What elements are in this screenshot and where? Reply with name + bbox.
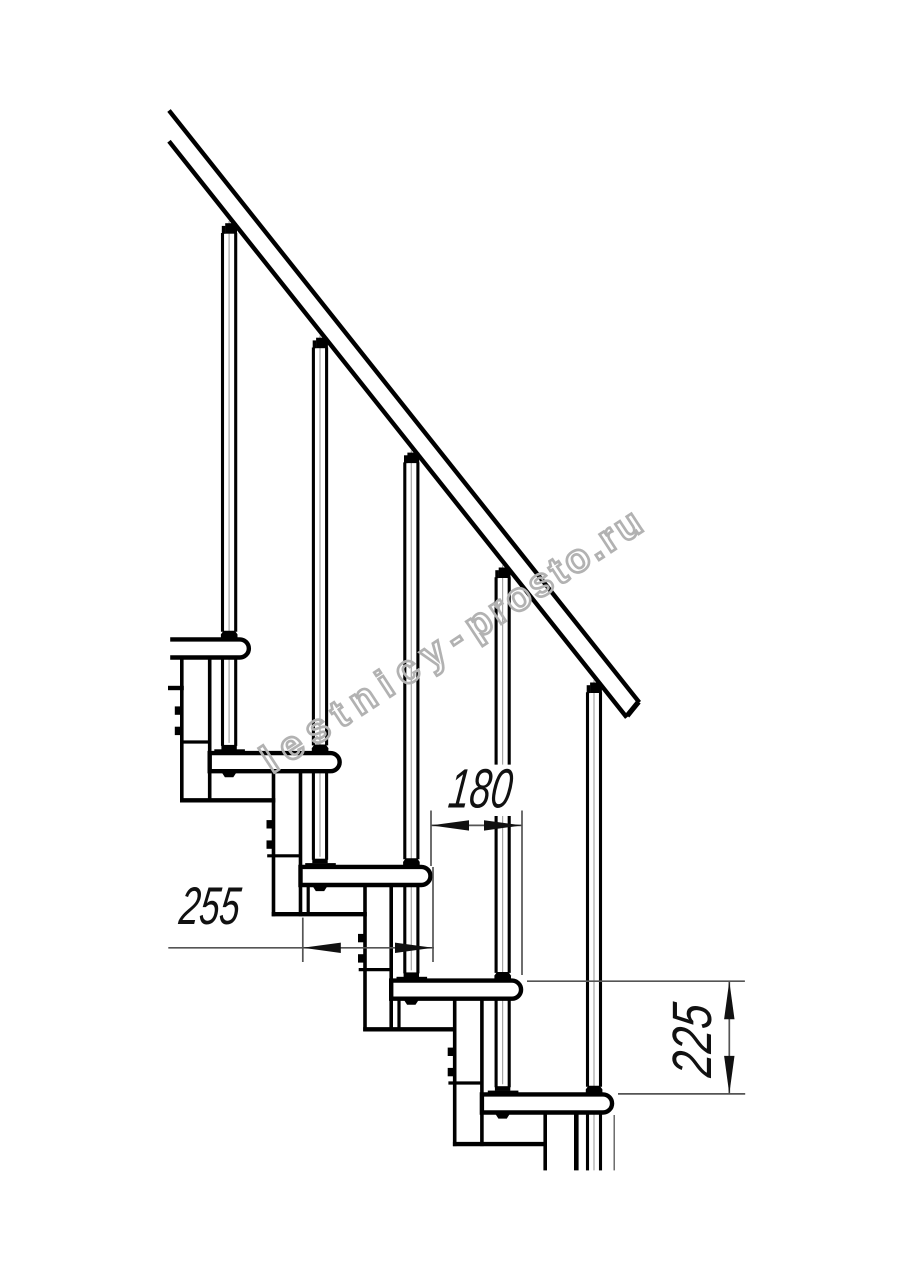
svg-text:225: 225	[661, 999, 723, 1080]
svg-text:255: 255	[176, 877, 244, 936]
svg-text:180: 180	[446, 758, 517, 820]
